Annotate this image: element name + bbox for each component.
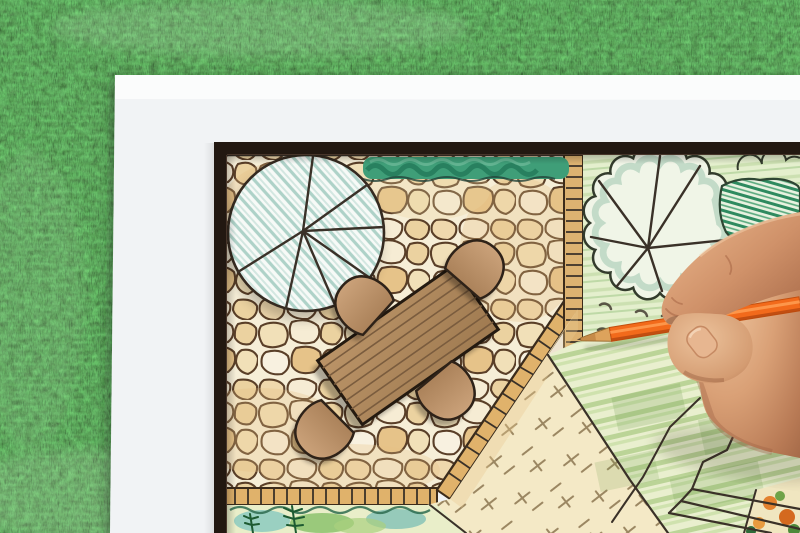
plan-frame-left <box>214 142 227 533</box>
plan-frame-top <box>214 142 800 155</box>
frame-inner-shadow-left <box>227 155 236 533</box>
photo-of-garden-plan-drawing <box>0 0 800 533</box>
brick-border-bottom <box>222 488 437 505</box>
planting-bed <box>227 505 466 533</box>
paper-highlight <box>115 75 800 100</box>
scene-canvas <box>0 0 800 533</box>
frame-inner-shadow-top <box>227 155 800 164</box>
